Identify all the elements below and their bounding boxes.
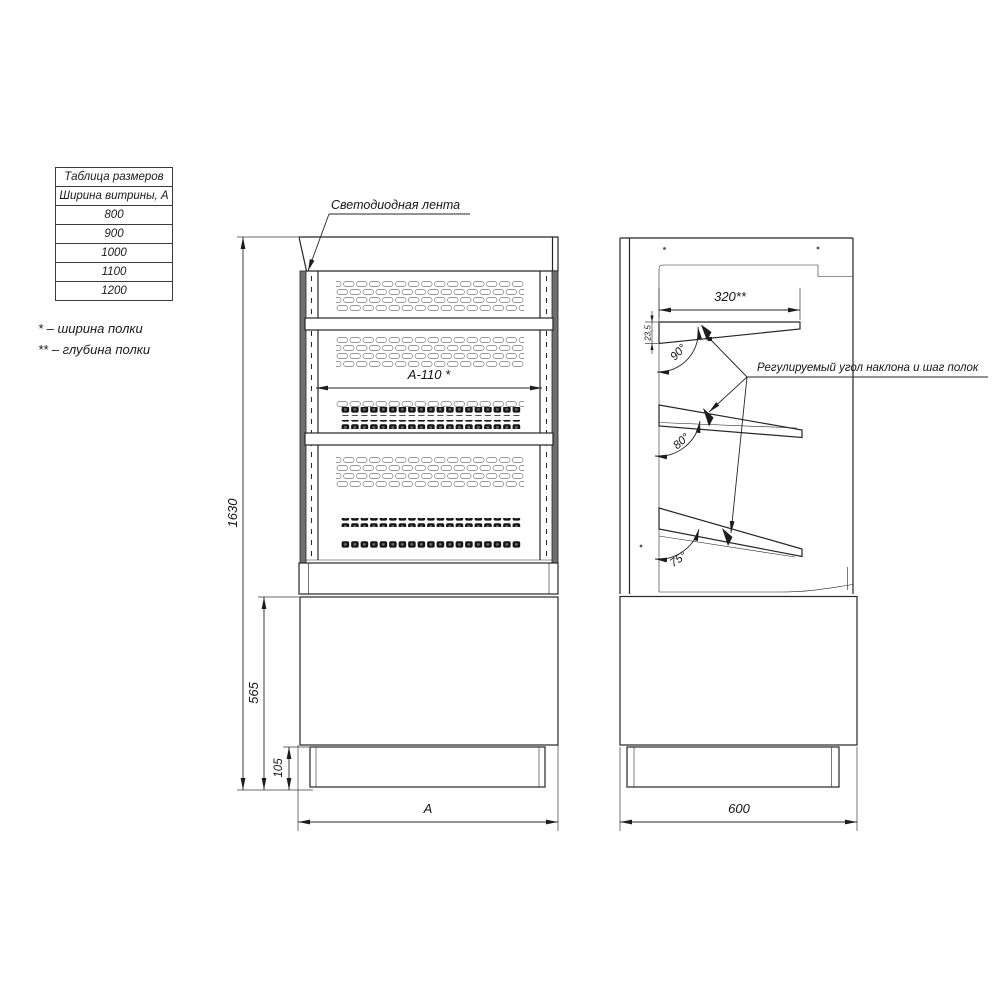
drawing-canvas: Светодиодная лента 1630 565 105: [0, 0, 1000, 1000]
shelf-middle: [659, 405, 802, 438]
dim-shelf-edge: 23,5: [644, 311, 659, 354]
dim-total-height-label: 1630: [225, 498, 240, 528]
fastener-dot: [817, 247, 820, 250]
shelf-top: [659, 322, 800, 344]
dim-plinth-height: 105: [273, 747, 309, 790]
fastener-dot: [640, 545, 643, 548]
technical-drawing-page: Таблица размеров Ширина витрины, А 800 9…: [0, 0, 1000, 1000]
side-base-cabinet: [620, 597, 857, 746]
right-post: [540, 271, 558, 563]
canopy: [299, 237, 558, 271]
angle-bottom-label: 75°: [668, 550, 689, 570]
fastener-dot: [663, 247, 666, 250]
front-bumper: [299, 560, 558, 594]
angle-top-label: 90°: [668, 342, 689, 363]
shelf-bottom: [659, 508, 802, 557]
dim-overall-depth-label: 600: [728, 801, 750, 816]
side-plinth: [627, 747, 839, 787]
dim-shelf-width: А-110 *: [316, 367, 542, 388]
front-plinth: [310, 747, 545, 787]
perforated-back-panel: [336, 280, 524, 488]
dim-shelf-depth: 320**: [659, 288, 800, 320]
adjustable-shelves-label: Регулируемый угол наклона и шаг полок: [757, 362, 979, 374]
front-base-cabinet: [300, 597, 558, 745]
dim-overall-width-label: А: [423, 801, 433, 816]
adjustable-shelves-callout: Регулируемый угол наклона и шаг полок: [708, 337, 988, 533]
dim-shelf-depth-label: 320**: [714, 289, 747, 304]
left-post: [300, 271, 318, 563]
dim-shelf-edge-label: 23,5: [644, 325, 653, 342]
led-strip-label: Светодиодная лента: [331, 198, 460, 212]
front-view: Светодиодная лента 1630 565 105: [225, 198, 558, 831]
side-view: 90° 80° 75° Регулируемый угол наклона и …: [620, 238, 988, 831]
dim-base-height-label: 565: [246, 681, 261, 703]
dim-plinth-height-label: 105: [273, 758, 285, 778]
dim-shelf-width-label: А-110 *: [407, 367, 451, 382]
angle-middle-label: 80°: [671, 431, 692, 452]
